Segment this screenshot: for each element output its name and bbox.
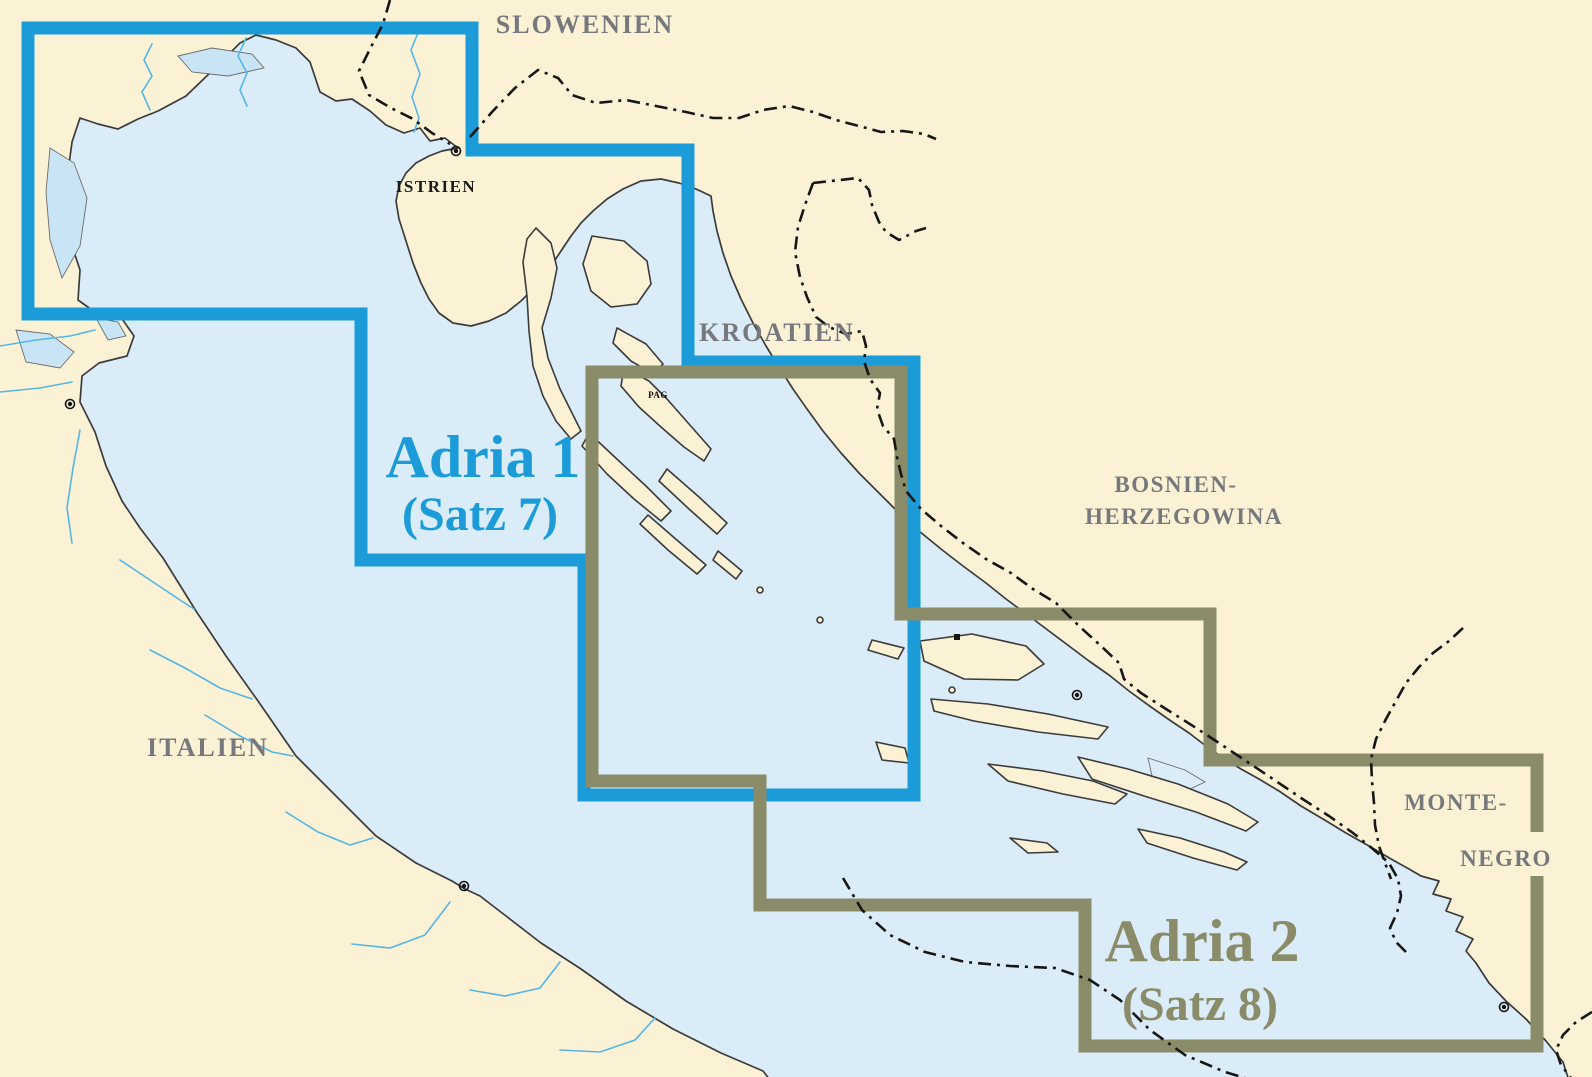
islet-dot <box>817 617 823 623</box>
label-istria: ISTRIEN <box>396 177 476 196</box>
label-bosnia-line2: HERZEGOWINA <box>1085 504 1283 529</box>
label-bosnia-line1: BOSNIEN- <box>1114 472 1237 497</box>
islet-dot <box>757 587 763 593</box>
label-adria-2-subtitle: (Satz 8) <box>1122 978 1278 1031</box>
map-canvas: SLOWENIEN ISTRIEN KROATIEN BOSNIEN- HERZ… <box>0 0 1592 1077</box>
label-adria-1-title: Adria 1 <box>386 424 581 490</box>
label-montenegro-line2: NEGRO <box>1460 846 1552 871</box>
label-adria-2-title: Adria 2 <box>1105 908 1300 974</box>
town-marker <box>954 634 960 640</box>
label-adria-1-subtitle: (Satz 7) <box>402 488 558 541</box>
label-croatia: KROATIEN <box>699 318 855 347</box>
label-slovenia: SLOWENIEN <box>496 10 674 39</box>
adriatic-coverage-map: SLOWENIEN ISTRIEN KROATIEN BOSNIEN- HERZ… <box>0 0 1592 1077</box>
label-italy: ITALIEN <box>147 733 269 762</box>
label-montenegro-line1: MONTE- <box>1404 790 1508 815</box>
label-pag-island: PAG <box>648 390 668 400</box>
islet-dot <box>949 687 955 693</box>
